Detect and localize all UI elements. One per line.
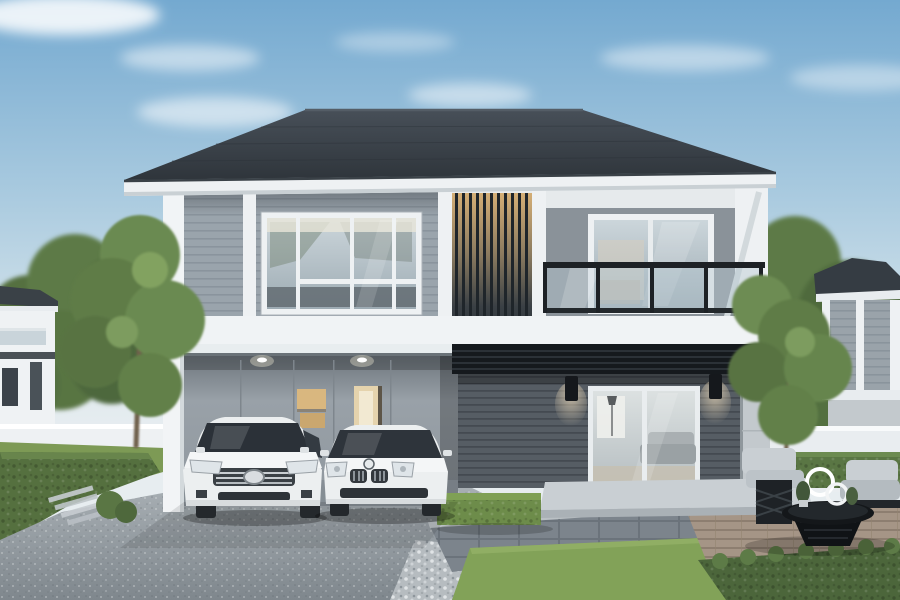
render-canvas [0, 0, 900, 600]
neighbor-house-left [0, 286, 58, 433]
box-hedge [437, 493, 553, 535]
upper-picture-window [261, 212, 422, 315]
carport-lit-window [297, 389, 326, 428]
dark-siding-wall [458, 374, 740, 488]
house-exterior-render [0, 0, 900, 600]
car-right-sedan [315, 425, 455, 524]
car-left-grille [213, 468, 295, 486]
balcony-railing [543, 262, 765, 313]
upper-floor [163, 186, 768, 356]
carport-lit-door [354, 386, 382, 429]
floor-band [163, 316, 768, 344]
living-room-glass-door [588, 386, 700, 488]
